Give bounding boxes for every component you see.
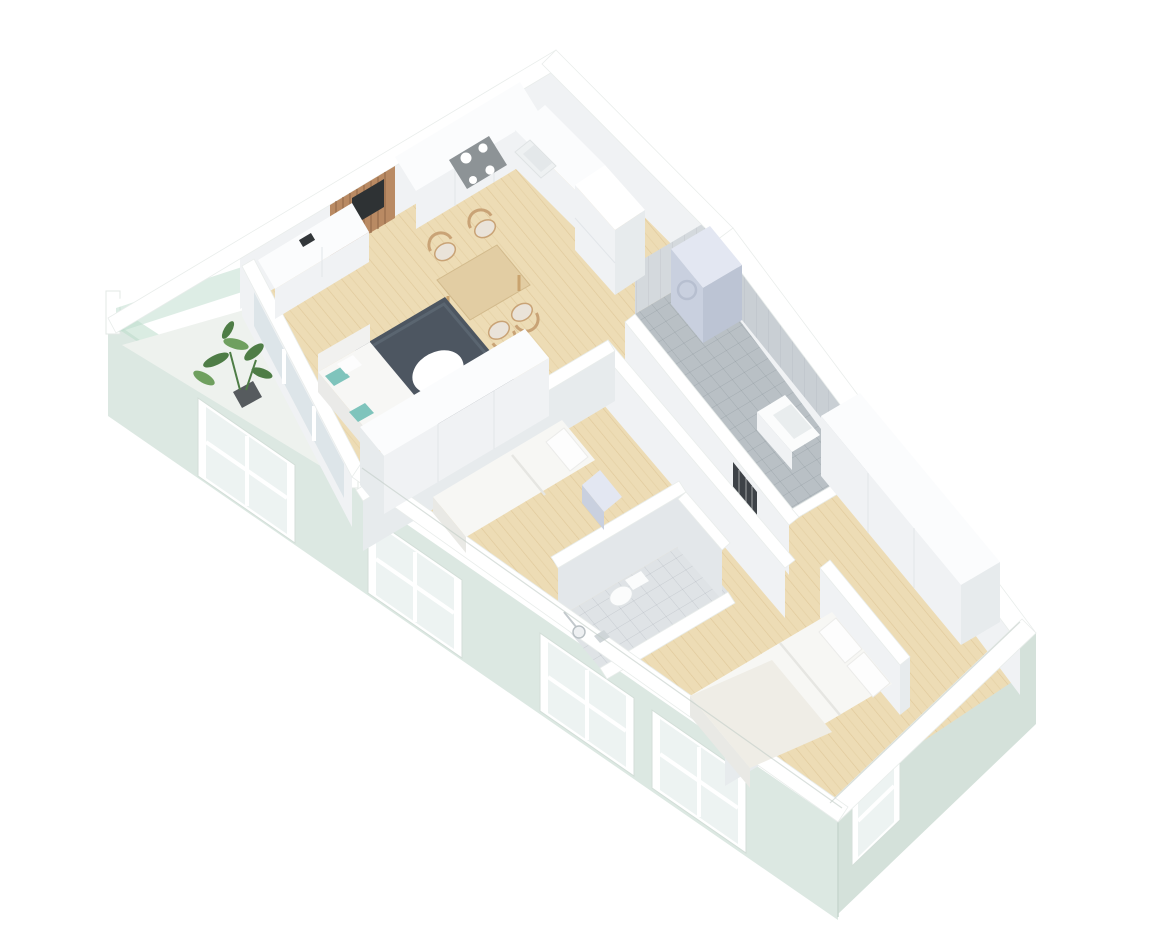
isometric-scene bbox=[0, 0, 1170, 934]
wall-end bbox=[900, 657, 910, 715]
floorplan-render bbox=[0, 0, 1170, 934]
